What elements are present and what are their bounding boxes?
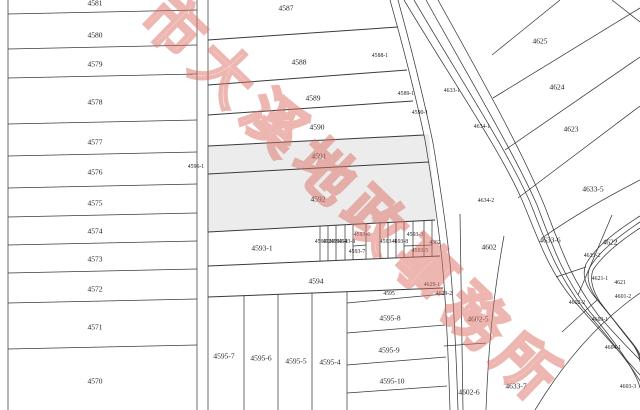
parcel-label-4590-1: 4590-1 — [412, 111, 428, 117]
parcel-label-4595-7: 4595-7 — [213, 352, 234, 360]
parcel-label-4621: 4621 — [614, 281, 626, 287]
parcel-label-4593-5: 4593-5 — [412, 249, 428, 255]
parcel-label-4595: 4595 — [383, 292, 395, 298]
parcel-label-4594: 4594 — [309, 277, 324, 285]
parcel-label-4595-8: 4595-8 — [379, 314, 400, 322]
parcel-label-4629-2: 4629-2 — [436, 292, 452, 298]
parcel-label-4633-5: 4633-5 — [582, 185, 603, 193]
parcel-label-4623: 4623 — [564, 125, 579, 133]
parcel-label-4589: 4589 — [306, 94, 321, 102]
parcel-label-4577: 4577 — [88, 138, 103, 146]
parcel-label-4580: 4580 — [88, 31, 103, 39]
parcel-label-4625: 4625 — [533, 37, 548, 45]
parcel-label-4573: 4573 — [88, 255, 103, 263]
parcel-label-4633-1: 4633-1 — [444, 89, 460, 95]
parcel-label-4588: 4588 — [292, 58, 307, 66]
parcel-label-4591: 4591 — [312, 152, 327, 160]
parcel-label-4603-3: 4603-3 — [620, 385, 636, 391]
parcel-label-4595-5: 4595-5 — [285, 357, 306, 365]
parcel-label-4593-1: 4593-1 — [251, 244, 272, 252]
parcel-label-4629-1: 4629-1 — [424, 283, 440, 289]
parcel-label-4622: 4622 — [603, 238, 618, 246]
parcel-label-4602-2: 4602-2 — [569, 301, 585, 307]
parcel-label-4595-4: 4595-4 — [319, 358, 340, 366]
parcel-label-4362: 4362 — [429, 241, 441, 247]
parcel-label-4602-6: 4602-6 — [458, 388, 479, 396]
parcel-label-4578: 4578 — [88, 98, 103, 106]
parcel-label-4590: 4590 — [310, 123, 325, 131]
parcel-label-4593-7: 4593-7 — [349, 250, 365, 256]
parcel-label-4592: 4592 — [311, 195, 326, 203]
parcel-label-4579: 4579 — [88, 60, 103, 68]
parcel-label-4603-1: 4603-1 — [592, 318, 608, 324]
parcel-label-4602-5: 4602-5 — [467, 315, 488, 323]
parcel-label-4634-2: 4634-2 — [478, 199, 494, 205]
parcel-label-4587: 4587 — [279, 4, 294, 12]
parcel-label-4633-6: 4633-6 — [539, 236, 560, 244]
parcel-label-4571: 4571 — [88, 323, 103, 331]
parcel-label-4595-9: 4595-9 — [378, 346, 399, 354]
parcel-label-4593-8: 4593-8 — [339, 240, 355, 246]
parcel-label-4596-1: 4596-1 — [188, 165, 204, 171]
parcel-label-4588-1: 4588-1 — [372, 54, 388, 60]
parcel-label-4576: 4576 — [88, 168, 103, 176]
parcel-label-4572: 4572 — [88, 285, 103, 293]
parcel-label-4633-7: 4633-7 — [505, 382, 526, 390]
parcel-label-4601-2: 4601-2 — [615, 295, 631, 301]
parcel-label-4570: 4570 — [88, 377, 103, 385]
parcel-label-4593-8: 4593-8 — [392, 240, 408, 246]
parcel-label-4589-1: 4589-1 — [398, 92, 414, 98]
parcel-label-4595-6: 4595-6 — [250, 354, 271, 362]
parcel-label-4581: 4581 — [88, 0, 103, 7]
parcel-label-4593-6: 4593-6 — [354, 233, 370, 239]
parcel-label-4634-1: 4634-1 — [474, 125, 490, 131]
parcel-label-4621-1: 4621-1 — [592, 277, 608, 283]
parcel-label-4624: 4624 — [550, 83, 565, 91]
parcel-label-4602: 4602 — [482, 243, 497, 251]
parcel-label-4595-10: 4595-10 — [380, 377, 405, 385]
cadastral-map-canvas[interactable]: 4581458045794578457745764575457445734572… — [0, 0, 640, 410]
parcel-label-4575: 4575 — [88, 199, 103, 207]
parcel-label-4633-2: 4633-2 — [584, 254, 600, 260]
parcel-label-4593-3: 4593-3 — [407, 233, 423, 239]
parcel-label-4604-1: 4604-1 — [605, 346, 621, 352]
parcel-label-4574: 4574 — [88, 227, 103, 235]
